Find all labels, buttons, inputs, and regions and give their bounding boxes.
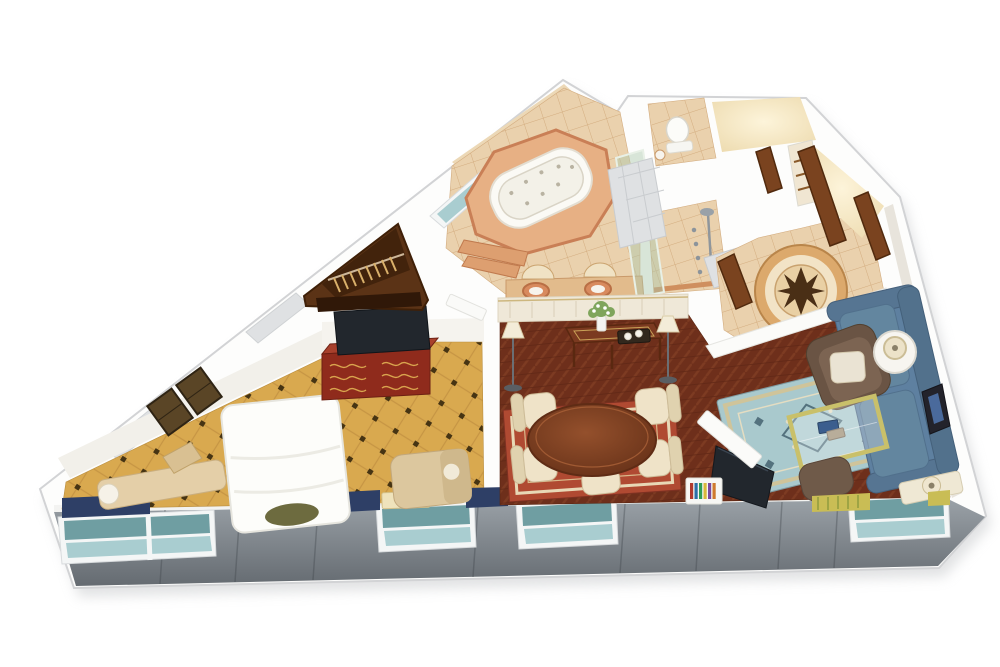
- king-bed: [220, 394, 351, 534]
- oval-dining-table: [528, 404, 656, 476]
- valance-yellow-2: [928, 490, 950, 506]
- window-1: [58, 510, 216, 564]
- floor-plan-canvas: [0, 0, 1000, 667]
- media-shelf: [686, 478, 722, 504]
- valance-yellow-1: [812, 493, 870, 512]
- small-sink: [655, 150, 665, 160]
- window-mullion: [148, 513, 150, 560]
- compass-star: [777, 267, 825, 315]
- window-3: [516, 498, 618, 549]
- flat-tv: [334, 306, 430, 355]
- flower-vase: [597, 316, 606, 331]
- armchair-pillow: [830, 351, 866, 383]
- round-side-table: [874, 331, 916, 373]
- water-closet: [648, 98, 716, 166]
- coffee-tray: [618, 329, 651, 344]
- lounge-chair: [389, 448, 472, 510]
- dresser-front: [322, 348, 430, 400]
- floor-plan-image: [0, 0, 1000, 667]
- shower-head: [700, 208, 714, 216]
